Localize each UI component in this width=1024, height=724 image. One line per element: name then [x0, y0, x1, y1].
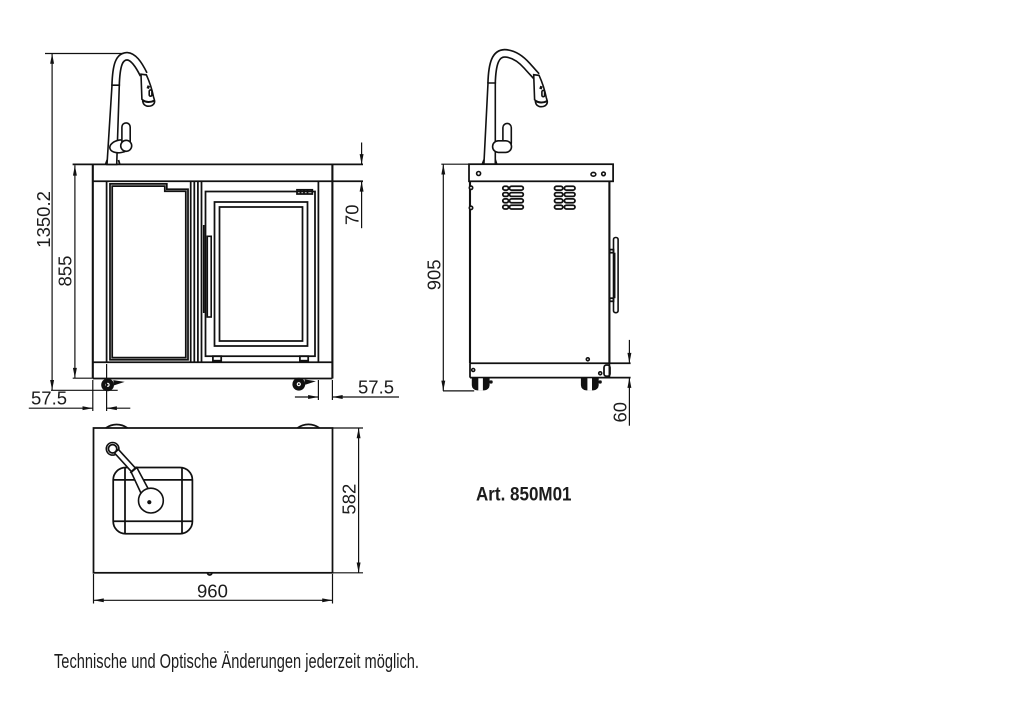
svg-text:57.5: 57.5 — [31, 388, 67, 409]
svg-text:57.5: 57.5 — [358, 377, 394, 398]
svg-text:Technische und Optische Änderu: Technische und Optische Änderungen jeder… — [54, 651, 419, 673]
svg-text:70: 70 — [342, 205, 363, 226]
svg-text:60: 60 — [610, 402, 631, 423]
svg-text:Art. 850M01: Art. 850M01 — [476, 484, 572, 505]
svg-text:960: 960 — [197, 580, 228, 601]
svg-text:905: 905 — [423, 259, 444, 290]
svg-text:582: 582 — [339, 484, 360, 515]
svg-text:855: 855 — [55, 256, 76, 287]
svg-text:1350.2: 1350.2 — [33, 191, 54, 248]
